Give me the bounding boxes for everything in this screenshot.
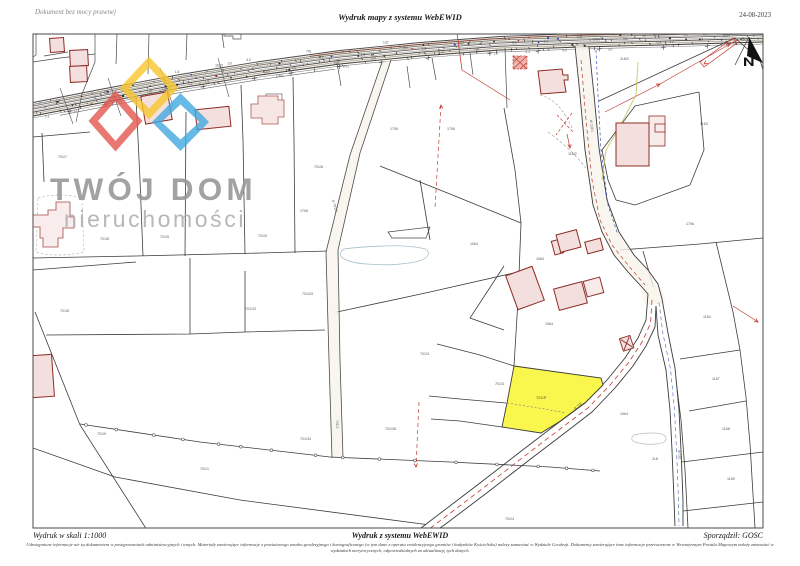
svg-text:dr 118: dr 118 [677,450,682,460]
svg-text:701/3: 701/3 [495,382,504,386]
svg-text:3.0: 3.0 [669,40,674,44]
svg-text:1168: 1168 [722,427,730,431]
svg-text:122: 122 [383,41,389,45]
svg-text:120: 120 [333,60,339,64]
svg-text:118/2: 118/2 [568,152,577,156]
svg-text:120: 120 [371,56,377,60]
svg-text:1.8: 1.8 [493,52,498,56]
svg-text:2.1: 2.1 [525,50,530,54]
svg-text:2.1: 2.1 [188,82,193,86]
svg-text:122: 122 [104,90,110,94]
svg-text:3.0: 3.0 [228,61,233,65]
svg-text:118: 118 [656,41,661,45]
svg-text:701/2: 701/2 [335,420,339,429]
svg-text:701/8: 701/8 [100,237,109,241]
svg-text:118/2: 118/2 [592,38,600,42]
svg-text:2.1: 2.1 [319,55,324,59]
svg-text:118/2: 118/2 [276,74,284,78]
svg-text:1064: 1064 [536,257,544,261]
svg-text:nieruchomości: nieruchomości [64,206,246,232]
svg-text:701: 701 [344,65,350,69]
svg-text:12: 12 [74,109,78,113]
svg-text:120: 120 [741,38,747,42]
svg-text:4.0: 4.0 [562,49,567,53]
svg-text:4.0: 4.0 [55,100,60,104]
svg-text:1.5: 1.5 [205,80,210,84]
svg-text:1163: 1163 [700,122,708,126]
svg-text:701/5: 701/5 [160,235,169,239]
svg-text:701/34: 701/34 [300,437,311,441]
svg-text:701/4: 701/4 [505,517,514,521]
svg-text:701/1: 701/1 [200,467,209,471]
svg-text:1706: 1706 [447,127,455,131]
svg-text:TWÓJ DOM: TWÓJ DOM [50,171,257,207]
svg-text:120: 120 [147,90,153,94]
svg-text:1706: 1706 [300,209,308,213]
svg-text:1064: 1064 [545,322,553,326]
svg-text:118/2: 118/2 [215,63,223,67]
svg-text:701/33: 701/33 [245,307,256,311]
svg-text:701: 701 [622,37,628,41]
svg-text:4.0: 4.0 [246,58,251,62]
svg-text:701/P: 701/P [536,395,547,400]
svg-text:122: 122 [439,50,445,54]
svg-text:701/7: 701/7 [58,155,67,159]
svg-text:3.0: 3.0 [265,70,270,74]
svg-text:701/3: 701/3 [420,352,429,356]
svg-text:701/33: 701/33 [302,292,313,296]
svg-text:1.5: 1.5 [361,53,366,57]
svg-text:3.0: 3.0 [512,41,517,45]
svg-text:2.1: 2.1 [544,39,549,43]
svg-text:1167: 1167 [712,377,720,381]
svg-text:118: 118 [652,457,658,461]
svg-text:701/5: 701/5 [258,234,267,238]
svg-text:701/9: 701/9 [97,432,106,436]
svg-text:118/3: 118/3 [620,57,629,61]
svg-text:122: 122 [459,41,465,45]
svg-text:2.1: 2.1 [45,115,50,119]
svg-text:701/38: 701/38 [385,427,396,431]
svg-text:701: 701 [474,47,480,51]
svg-text:1169: 1169 [727,477,735,481]
svg-text:3.0: 3.0 [608,47,613,51]
svg-text:1064: 1064 [620,412,628,416]
svg-text:122: 122 [577,35,583,39]
svg-text:1.5: 1.5 [422,47,427,51]
svg-text:122: 122 [402,46,408,50]
svg-text:1706: 1706 [686,222,694,226]
svg-text:1164: 1164 [703,315,711,319]
svg-text:1706: 1706 [390,127,398,131]
svg-text:120: 120 [722,34,728,38]
svg-text:701/8: 701/8 [314,165,323,169]
svg-text:701: 701 [306,50,312,54]
svg-text:1.8: 1.8 [175,70,180,74]
svg-text:1064: 1064 [470,242,478,246]
svg-text:701/8: 701/8 [60,309,69,313]
svg-text:4.0: 4.0 [292,66,297,70]
svg-text:12: 12 [93,95,97,99]
